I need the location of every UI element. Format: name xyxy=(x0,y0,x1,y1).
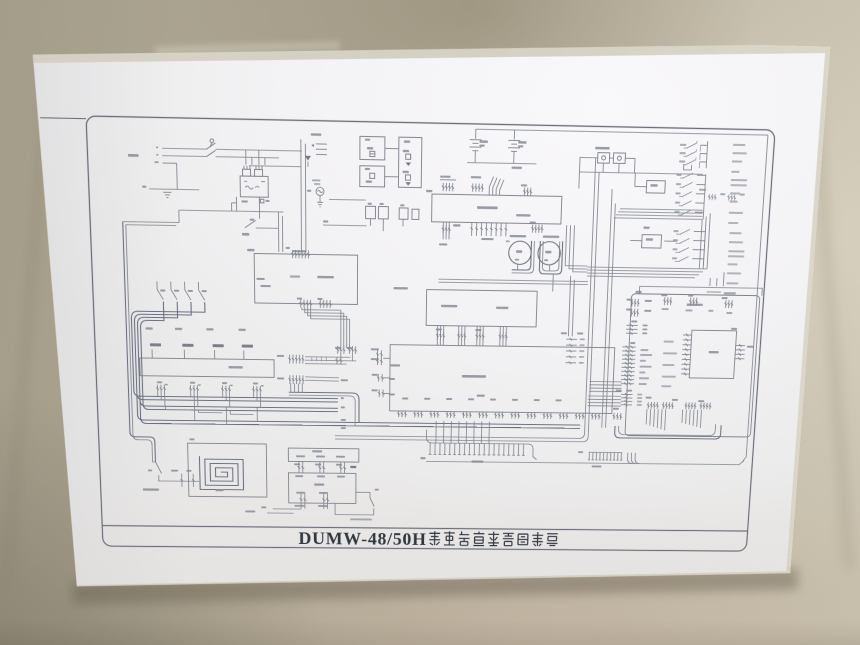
svg-text:DUMW-48/50H: DUMW-48/50H xyxy=(298,529,426,549)
